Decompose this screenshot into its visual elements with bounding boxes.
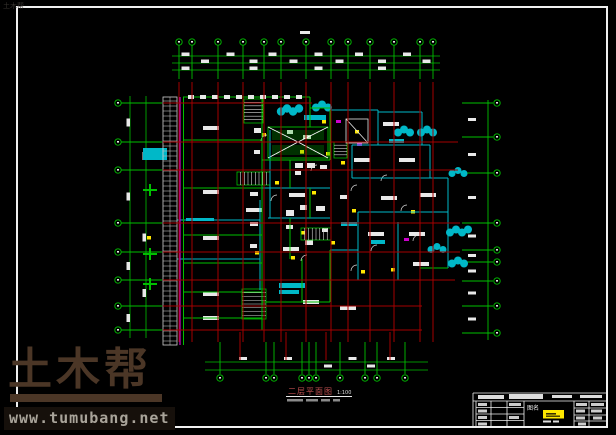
title-block-left-table [476, 401, 524, 427]
hatch-strip [163, 97, 184, 345]
top-axis [172, 31, 440, 79]
left-axis [115, 96, 162, 338]
bottom-axis [205, 342, 428, 381]
plan-title-group: 二层平面图 1:100 [286, 387, 352, 402]
title-block: 图名 [473, 393, 607, 427]
plan-title: 二层平面图 [288, 387, 333, 396]
title-block-header-blobs [478, 394, 602, 399]
title-block-right-table [574, 401, 607, 427]
corner-watermark: 土木帮 [3, 1, 24, 11]
right-axis [462, 100, 500, 340]
watermark-logo-bar [10, 394, 162, 402]
title-block-name-cell: 图名 [527, 401, 574, 427]
drawing-name-label: 图名 [527, 404, 539, 412]
plan-subtitle-blobs [287, 399, 340, 402]
plan-scale: 1:100 [337, 390, 351, 396]
watermark-logo: 土木帮 [8, 348, 152, 392]
watermark-url: www.tumubang.net [4, 407, 175, 430]
cad-screenshot: 二层平面图 1:100 [0, 0, 616, 435]
